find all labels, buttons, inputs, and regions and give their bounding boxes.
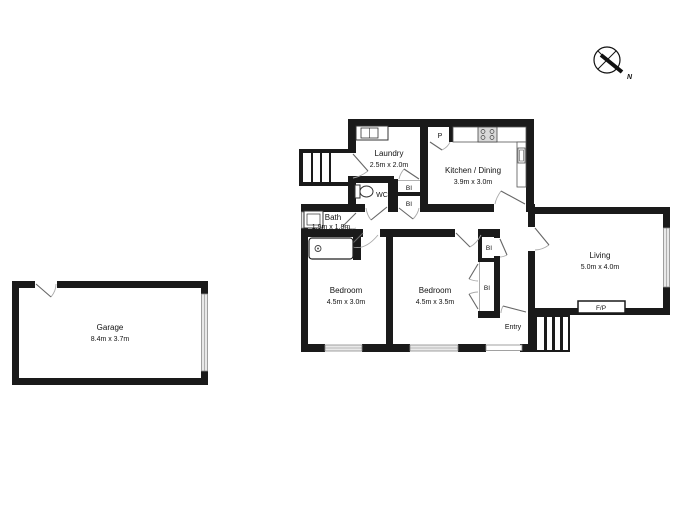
compass-north-label: N [627,74,633,81]
living-door-leaf [535,228,549,245]
pantry-label: P [438,133,443,140]
bath-dims: 1.9m x 1.8m [312,224,351,231]
built-in-2-label: BI [406,201,412,208]
garage-door-arc [51,284,56,297]
bedroom2-name: Bedroom [419,286,452,295]
built-in-4-label: BI [484,285,490,292]
bi3-door-leaf [500,239,507,255]
bi3-door-arc [500,255,507,257]
wall-garage-top-b [57,281,208,288]
entry-steps [536,316,569,351]
fireplace-label: F/P [596,305,606,312]
wc-door-leaf [371,207,387,220]
wall-garage-bottom [12,378,208,385]
bi4-door-arc-b [469,292,478,294]
wall-bottom-d [458,344,486,352]
wall-garage-left [12,281,19,385]
floorplan-page: F/P N Garage 8.4m x 3.7m Laundry 2.5m x … [0,0,680,510]
wall-north-wing-left-a [348,119,356,153]
built-in-1-label: BI [406,185,412,192]
wall-corridor-west-b [494,256,500,314]
laundry-dims: 2.5m x 2.0m [370,162,409,169]
bedroom2-door-leaf [456,233,470,247]
wall-entry-east [528,313,535,352]
wall-bi-top-left [478,229,482,261]
wall-laundry-south [348,176,394,183]
bi1-door-leaf [404,169,419,179]
wall-bottom-c [386,344,410,352]
bi2-door-leaf [399,208,413,219]
kitchen-dims: 3.9m x 3.0m [454,179,493,186]
wall-living-west-a [528,207,535,227]
living-name: Living [590,251,611,260]
wall-living-west-b [528,251,535,313]
wall-bi-east-divider [478,258,500,262]
bi4-door-arc-a [469,279,478,281]
pantry-door-arc [442,142,450,150]
wall-bedroom-divider [386,229,393,352]
wall-north-wing-right [526,119,534,212]
compass: N [594,47,633,81]
wc-label: WC [376,192,388,199]
entry-label: Entry [505,324,522,331]
laundry-trough [356,126,388,140]
living-dims: 5.0m x 4.0m [581,264,620,271]
entry-exterior-door [486,345,522,351]
living-door-arc [535,245,549,250]
laundry-name: Laundry [375,149,404,158]
garage-dims: 8.4m x 3.7m [91,336,130,343]
pantry-door-leaf [430,142,442,150]
built-in-3-label: BI [486,245,492,252]
laundry-door-leaf [353,154,368,171]
bedroom1-name: Bedroom [330,286,363,295]
wall-bottom-a [301,344,325,352]
wall-hall-top-c [420,204,494,212]
fireplace: F/P [578,301,625,313]
entry-door-arc [501,306,503,313]
wall-wc-east [388,183,394,204]
garage-door-leaf [36,284,51,297]
bathtub-icon [309,238,353,259]
garage-name: Garage [97,323,124,332]
kitchen-door-leaf [501,191,525,204]
entry-door-leaf [503,306,526,312]
bedroom1-dims: 4.5m x 3.0m [327,299,366,306]
wall-bed2-top-a [393,229,455,237]
wall-living-top [528,207,670,214]
bi2-door-arc [413,208,419,219]
wall-living-right-a [663,207,670,228]
laundry-stairs [299,149,349,186]
bath-name: Bath [325,213,341,222]
bi1-door-arc [399,169,404,179]
wall-bi-entry [478,311,500,318]
bi4-door-leaf-a [469,264,478,279]
wall-hall-top-b [388,204,398,212]
kitchen-name: Kitchen / Dining [445,166,501,175]
wall-corridor-west-a [494,229,500,238]
wc-door-arc [366,208,371,220]
wall-garage-right-a [201,281,208,294]
floorplan-svg: F/P N Garage 8.4m x 3.7m Laundry 2.5m x … [0,0,680,510]
wall-garage-right-b [201,371,208,385]
kitchen-door-arc [495,191,501,204]
toilet-icon [355,185,373,198]
wall-bi-divider [394,192,424,196]
bedroom2-dims: 4.5m x 3.5m [416,299,455,306]
stove-icon [478,127,497,142]
bi4-door-leaf-b [469,294,478,309]
